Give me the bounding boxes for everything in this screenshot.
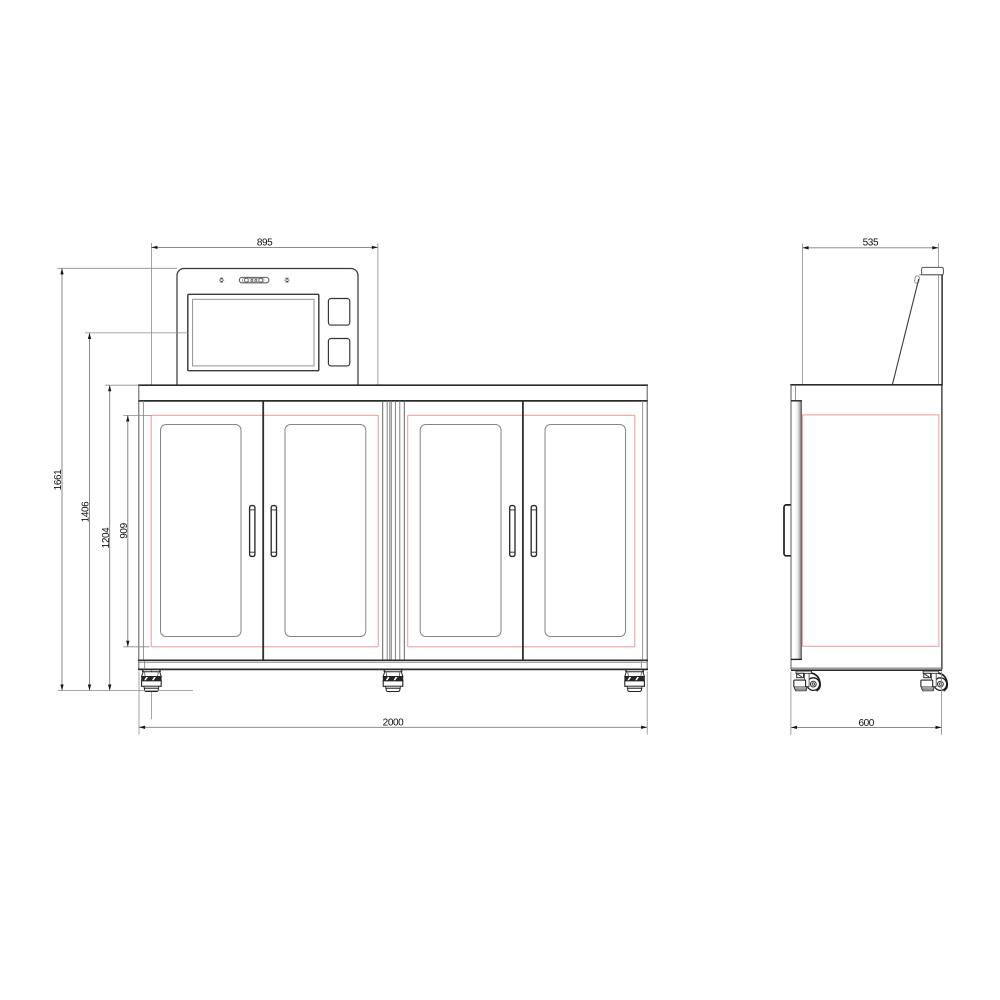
svg-text:535: 535 xyxy=(863,238,879,249)
svg-text:1406: 1406 xyxy=(81,501,92,522)
svg-text:895: 895 xyxy=(257,237,273,248)
svg-text:2000: 2000 xyxy=(383,718,404,729)
svg-text:600: 600 xyxy=(858,718,874,729)
svg-text:909: 909 xyxy=(119,522,130,538)
svg-text:1661: 1661 xyxy=(53,469,64,490)
svg-text:1204: 1204 xyxy=(101,527,112,548)
